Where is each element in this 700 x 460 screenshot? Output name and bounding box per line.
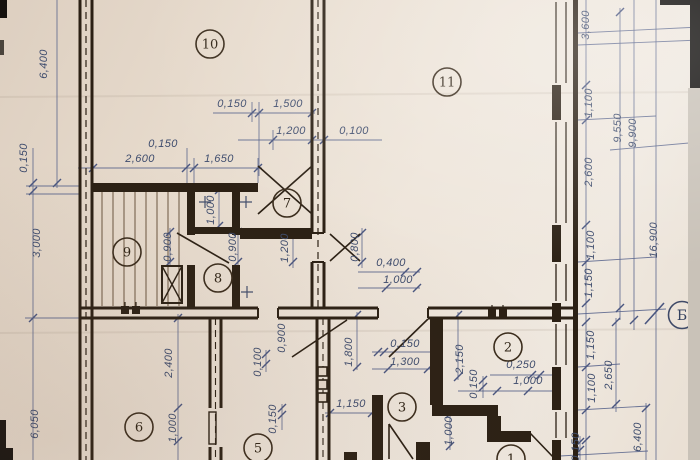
door-room8 (177, 233, 229, 263)
dimension-label: 6,400 (38, 49, 50, 79)
dimension-label: 0,150 (267, 404, 279, 434)
dimension-label: 2,650 (603, 360, 615, 391)
room-number-1: 1 (497, 445, 525, 460)
dimension-label: 2,400 (163, 348, 175, 379)
room-number-text: 11 (439, 76, 456, 91)
dimension-labels: 6,4000,1503,0006,0500,1501,5001,2000,100… (18, 10, 660, 460)
dimension-label: 0,150 (570, 432, 582, 460)
dimension-label: 1,650 (204, 153, 234, 165)
dimension-lines (25, 0, 700, 460)
room-number-11: 11 (433, 68, 461, 96)
dimension-label: 2,150 (454, 344, 466, 375)
axis-slash (645, 303, 664, 324)
dimension-label: 1,100 (586, 373, 598, 403)
door-room1 (530, 433, 555, 459)
room-number-text: 2 (504, 341, 512, 356)
dimension-label: 1,000 (443, 416, 455, 446)
room-number-text: 7 (283, 197, 291, 212)
dimension-label: 0,150 (18, 143, 30, 173)
floor-plan-drawing: 6,4000,1503,0006,0500,1501,5001,2000,100… (0, 0, 700, 460)
dimension-label: 1,000 (513, 375, 543, 387)
dimension-label: 0,400 (376, 257, 406, 269)
room-number-text: 1 (507, 453, 515, 460)
dimension-label: 0,900 (276, 323, 288, 353)
dimension-label: 0,150 (468, 369, 480, 399)
dimension-label: 1,300 (390, 356, 420, 368)
axis-marker-letter: Б (677, 308, 687, 324)
dimension-label: 2,600 (124, 153, 155, 165)
dimension-label: 1,150 (336, 398, 366, 410)
room-number-2: 2 (494, 333, 522, 361)
door-room3-bottom (389, 424, 413, 459)
room-number-text: 5 (254, 442, 262, 457)
dimension-label: 3,600 (580, 10, 592, 40)
dimension-label: 1,200 (279, 233, 291, 263)
dimension-label: 9,550 (612, 113, 624, 143)
dimension-label: 1,100 (585, 230, 597, 260)
dimension-label: 1,150 (585, 330, 597, 360)
dimension-line (578, 40, 700, 45)
room-number-text: 8 (214, 272, 222, 287)
dimension-label: 1,000 (383, 274, 413, 286)
dimension-line (578, 309, 666, 314)
dimension-label: 0,150 (148, 138, 178, 150)
dimension-label: 16,900 (648, 221, 660, 258)
wall-box-symbols (318, 367, 327, 402)
door-corridor-left (292, 320, 347, 357)
room-number-8: 8 (204, 264, 232, 292)
dimension-label: 0,100 (252, 347, 264, 377)
dimension-line (578, 27, 700, 33)
room-number-7: 7 (273, 189, 301, 217)
dimension-label: 9,900 (627, 118, 639, 148)
room-number-text: 9 (123, 246, 131, 261)
room-number-text: 3 (398, 401, 406, 416)
dimension-label: 1,200 (276, 125, 306, 137)
dimension-label: 1,500 (273, 98, 303, 110)
dimension-label: 2,600 (583, 157, 595, 188)
room-number-text: 6 (135, 421, 143, 436)
dimension-label: 6,400 (632, 422, 644, 452)
dimension-label: 6,050 (29, 409, 41, 439)
room-number-3: 3 (388, 393, 416, 421)
dimension-label: 1,800 (343, 337, 355, 367)
dimension-label: 0,900 (162, 232, 174, 262)
dimension-label: 0,150 (217, 98, 247, 110)
dimension-label: 0,800 (349, 232, 361, 262)
dimension-label: 0,900 (227, 232, 239, 262)
floor-plan-photo: 6,4000,1503,0006,0500,1501,5001,2000,100… (0, 0, 700, 460)
room-number-10: 10 (196, 30, 224, 58)
room-number-5: 5 (244, 434, 272, 460)
dimension-label: 1,100 (583, 88, 595, 118)
room-number-text: 10 (202, 38, 219, 53)
dimension-label: 0,150 (390, 338, 420, 350)
room-number-6: 6 (125, 413, 153, 441)
room-number-9: 9 (113, 238, 141, 266)
dimension-label: 1,000 (167, 413, 179, 443)
dimension-label: 0,100 (339, 125, 369, 137)
dimension-label: 3,000 (31, 228, 43, 258)
dimension-label: 1,150 (583, 268, 595, 298)
dimension-label: 1,000 (205, 195, 217, 225)
